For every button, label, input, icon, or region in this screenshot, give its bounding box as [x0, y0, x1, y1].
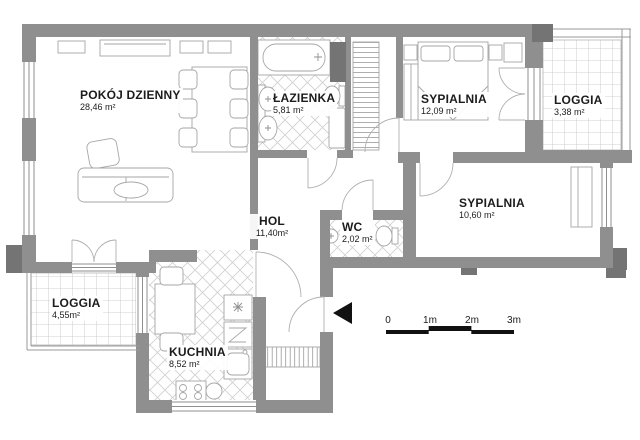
room-label-sypialnia-prawa: SYPIALNIA 10,60 m² — [457, 196, 527, 221]
window — [22, 161, 36, 235]
room-label-hol: HOL 11,40m² — [247, 214, 297, 239]
scale-label-1m: 1m — [423, 315, 437, 326]
room-area: 5,81 m² — [273, 105, 335, 116]
room-area: 2,02 m² — [342, 234, 373, 245]
scale-label-3m: 3m — [507, 315, 521, 326]
room-name: POKÓJ DZIENNY — [80, 88, 181, 102]
scale-label-2m: 2m — [465, 315, 479, 326]
floor-plan: POKÓJ DZIENNY 28,46 m² ŁAZIENKA 5,81 m² … — [0, 0, 640, 440]
room-area: 8,52 m² — [169, 359, 226, 370]
loggia-left-french-door-icon — [72, 240, 116, 262]
dresser-icon — [504, 43, 522, 62]
room-name: ŁAZIENKA — [273, 91, 335, 105]
balcony-door-sill — [528, 68, 540, 120]
wardrobe-icon — [571, 167, 592, 227]
hall-wardrobe-icon — [257, 347, 320, 367]
entrance-marker-icon — [333, 302, 352, 324]
window — [172, 400, 256, 413]
loggia-right-french-door-icon — [499, 68, 525, 120]
room-label-pokoj-dzienny: POKÓJ DZIENNY 28,46 m² — [78, 88, 183, 113]
room-name: KUCHNIA — [169, 345, 226, 359]
room-area: 28,46 m² — [80, 102, 181, 113]
kitchen-bowl-icon — [206, 383, 222, 399]
armchair-icon — [86, 138, 120, 170]
scale-label-0: 0 — [385, 315, 391, 326]
bedroom-right-door-icon — [420, 163, 453, 196]
floor-plan-drawing — [0, 0, 640, 440]
room-area: 12,09 m² — [421, 106, 487, 117]
hall-closet-icon — [353, 42, 379, 150]
room-area: 4,55m² — [52, 310, 101, 321]
kitchen-table-icon — [155, 284, 195, 334]
window — [600, 168, 613, 227]
kitchen-floor-top — [197, 250, 253, 262]
room-label-lazienka: ŁAZIENKA 5,81 m² — [271, 91, 337, 116]
kitchen-sink-icon — [224, 349, 252, 379]
room-area: 3,38 m² — [554, 107, 603, 118]
room-name: SYPIALNIA — [421, 92, 487, 106]
room-label-loggia-prawa: LOGGIA 3,38 m² — [552, 93, 605, 118]
washbasin-icon — [259, 116, 277, 140]
wc-toilet-icon — [376, 226, 398, 246]
stove-icon — [176, 381, 206, 402]
coffee-table-icon — [114, 182, 148, 198]
nightstand-icon — [489, 45, 502, 60]
entrance-door-icon — [289, 297, 324, 332]
wardrobe-icon — [404, 64, 418, 120]
window — [136, 277, 149, 333]
kitchen-door-icon — [256, 252, 301, 297]
window — [22, 62, 36, 118]
scale-bar — [386, 326, 514, 334]
nightstand-icon — [404, 45, 417, 60]
bathroom-door-icon — [308, 158, 337, 188]
room-label-kuchnia: KUCHNIA 8,52 m² — [167, 345, 228, 370]
bathtub-icon — [258, 40, 330, 75]
kitchen-chair-icon — [160, 267, 183, 285]
wc-door-icon — [342, 180, 373, 210]
sofa-small-icon — [100, 40, 170, 56]
room-area: 11,40m² — [249, 228, 295, 239]
room-name: SYPIALNIA — [459, 196, 525, 210]
room-name: HOL — [249, 214, 295, 228]
room-label-sypialnia-gorna: SYPIALNIA 12,09 m² — [419, 92, 489, 117]
balcony-door-sill — [72, 264, 116, 271]
room-label-wc: WC 2,02 m² — [340, 220, 375, 245]
room-area: 10,60 m² — [459, 210, 525, 221]
room-name: WC — [342, 220, 373, 234]
room-label-loggia-lewa: LOGGIA 4,55m² — [50, 296, 103, 321]
room-name: LOGGIA — [554, 93, 603, 107]
room-name: LOGGIA — [52, 296, 101, 310]
